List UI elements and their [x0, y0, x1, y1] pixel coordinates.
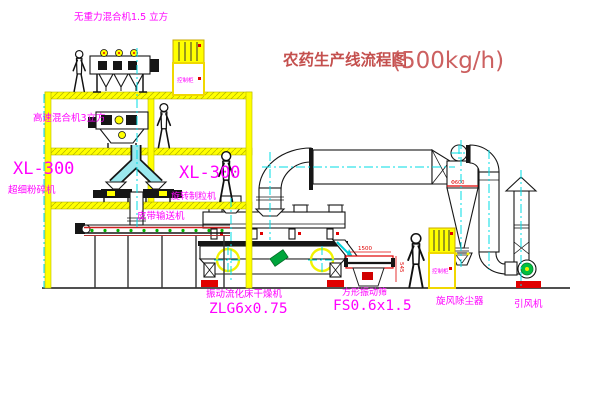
cabinet-top-label: 控制柜 [177, 76, 194, 84]
person-figure [157, 104, 170, 148]
label-pulverizer-model: XL-300 [13, 159, 74, 179]
cabinet-right-label: 控制柜 [432, 267, 449, 275]
diagram-drawing: Φ600 1500 545 [0, 0, 600, 403]
label-sieve-model: FS0.6x1.5 [333, 298, 412, 314]
flow-diagram-canvas: Φ600 1500 545 [0, 0, 600, 403]
person-figure [408, 234, 424, 287]
dryer-hangers [211, 229, 339, 239]
label-pulverizer: 超细粉碎机 [8, 184, 56, 196]
sieve-length-dim: 1500 [358, 246, 372, 252]
induced-draft-fan [505, 260, 541, 288]
label-high-speed-mixer: 高速混合机3立方 [33, 112, 106, 124]
control-cabinet-top: 控制柜 [173, 40, 204, 95]
page-title: 农药生产线流程图 [282, 50, 407, 69]
exhaust-duct [256, 148, 450, 216]
label-belt-conveyor: 皮带输送机 [137, 210, 185, 222]
label-granulator: 旋转制粒机 [171, 190, 216, 202]
vibrating-sieve: 1500 545 [333, 240, 404, 286]
sieve-height-dim: 545 [398, 262, 404, 273]
cyclone-diameter-dim: Φ600 [451, 180, 464, 186]
control-cabinet-right: 控制柜 [429, 228, 455, 288]
label-gravity-free-mixer: 无重力混合机1.5 立方 [74, 11, 168, 23]
label-fan: 引风机 [514, 298, 543, 310]
label-dryer-model: ZLG6x0.75 [209, 301, 288, 317]
person-figure [73, 51, 85, 92]
belt-rollers [90, 229, 223, 232]
label-dryer: 振动流化床干燥机 [206, 288, 283, 300]
label-granulator-model: XL-300 [179, 163, 240, 183]
downcomer-duct [479, 172, 507, 274]
granulator-left [93, 182, 132, 202]
page-title-capacity: (500kg/h) [392, 48, 504, 74]
label-cyclone: 旋风除尘器 [436, 295, 484, 307]
label-sieve: 方形振动筛 [342, 286, 387, 298]
gravity-free-mixer [90, 50, 159, 93]
